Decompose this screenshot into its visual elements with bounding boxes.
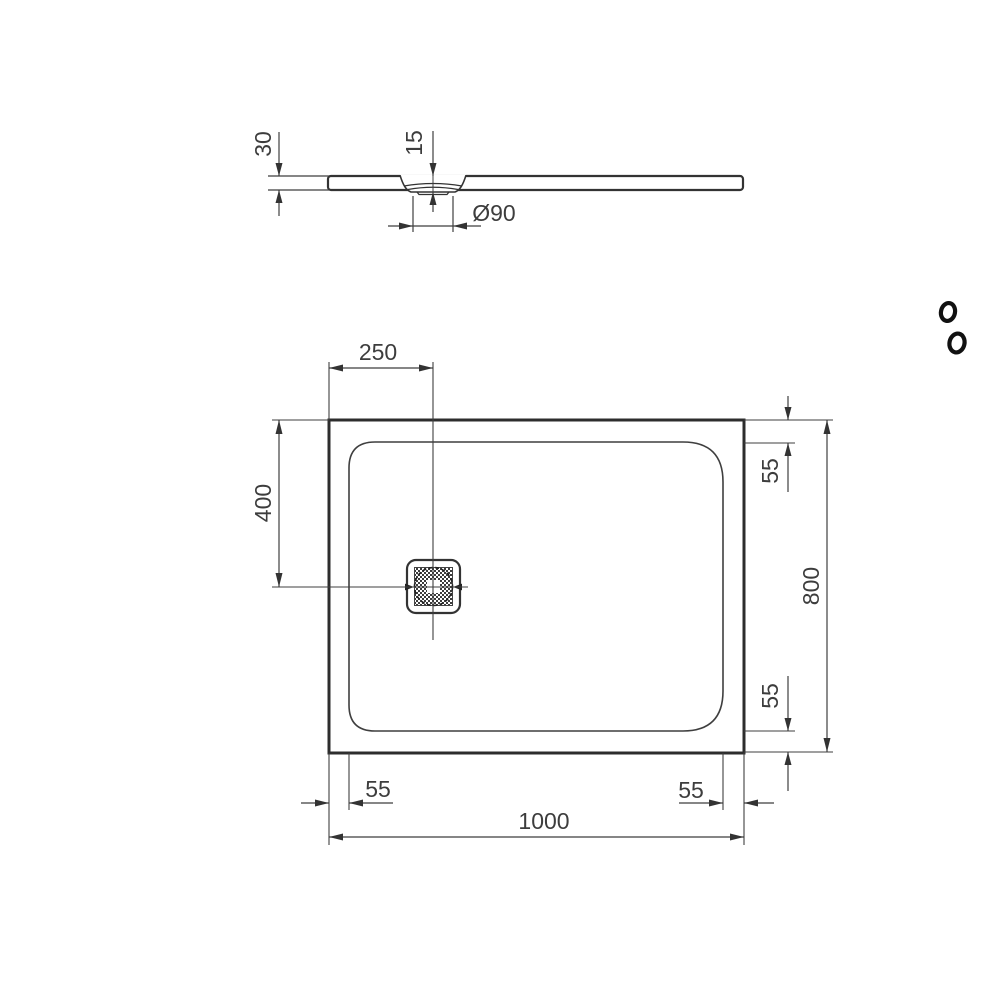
shower-tray-technical-drawing: 30 15 Ø90 (0, 0, 1000, 1000)
label-drain-offset-left: 250 (359, 339, 397, 365)
arrowhead (430, 163, 437, 176)
dimension-drain-offset-top: 400 (250, 420, 282, 587)
label-recess-depth: 15 (401, 130, 427, 156)
plan-view: 250 400 55 800 (250, 339, 833, 845)
dimension-rim-top: 55 (757, 396, 791, 492)
arrowhead (399, 223, 413, 230)
technical-drawing-page: 30 15 Ø90 (0, 0, 1000, 1000)
label-rim-right: 55 (678, 777, 704, 803)
label-rim-top: 55 (757, 458, 783, 484)
label-drain-offset-top: 400 (250, 484, 276, 522)
logo-ring-bottom (948, 332, 967, 354)
dimension-rim-bottom: 55 (757, 676, 791, 791)
logo-ring-top (939, 302, 956, 323)
dimension-drain-offset-left: 250 (329, 339, 433, 371)
dimension-overall-width: 800 (798, 420, 830, 752)
label-overall-length: 1000 (518, 808, 569, 834)
label-thickness: 30 (250, 131, 276, 157)
label-rim-bottom: 55 (757, 683, 783, 709)
arrowhead (276, 190, 283, 203)
arrowhead (453, 223, 467, 230)
tray-profile-outline (328, 176, 743, 190)
profile-view: 30 15 Ø90 (250, 130, 743, 232)
dimension-rim-right: 55 (678, 777, 774, 806)
label-overall-width: 800 (798, 567, 824, 605)
label-drain-diameter: Ø90 (472, 200, 515, 226)
label-rim-left: 55 (365, 776, 391, 802)
arrowhead (276, 163, 283, 176)
dimension-rim-left: 55 (301, 776, 393, 806)
dimension-thickness-30 (268, 132, 329, 216)
ideal-standard-logo-mark (939, 302, 966, 354)
dimension-overall-length: 1000 (329, 808, 744, 840)
